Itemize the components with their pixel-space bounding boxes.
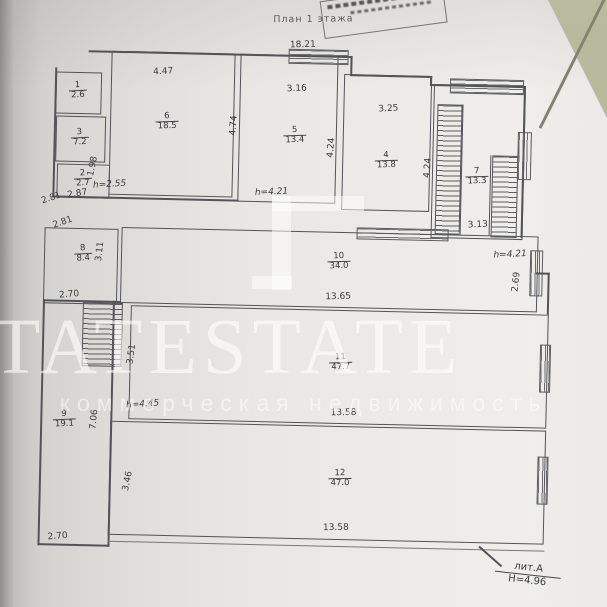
dim-label: 7.06 bbox=[88, 409, 100, 430]
room-4-outline bbox=[341, 74, 432, 212]
room-label-10: 1034.0 bbox=[327, 252, 351, 272]
dim-label: 2.70 bbox=[59, 289, 80, 301]
height-note: h=2.55 bbox=[93, 179, 127, 191]
room-area: 47.7 bbox=[329, 362, 352, 373]
room-label-5: 513.4 bbox=[283, 126, 307, 146]
height-note: h=4.21 bbox=[493, 249, 527, 261]
room-area: 13.3 bbox=[465, 176, 488, 187]
dim-label: 18.21 bbox=[290, 40, 316, 51]
dim-label: 4.24 bbox=[326, 137, 337, 158]
dim-label: 2.70 bbox=[47, 531, 68, 543]
room-number: 5 bbox=[292, 125, 298, 135]
floor-plan-photo: План 1 этажа bbox=[0, 0, 607, 607]
room-number: 2 bbox=[80, 168, 86, 178]
room-label-8: 88.4 bbox=[74, 244, 92, 264]
room-label-1: 12.6 bbox=[69, 81, 87, 101]
stair-flight-hatch bbox=[82, 302, 123, 367]
room-area: 18.5 bbox=[156, 121, 179, 132]
dim-label: 4.47 bbox=[153, 66, 173, 77]
room-number: 6 bbox=[164, 111, 170, 121]
room-number: 12 bbox=[334, 468, 345, 478]
corner-stamp bbox=[320, 0, 448, 39]
dim-label: 13.58 bbox=[331, 408, 357, 418]
watermark-logo-mark bbox=[252, 276, 292, 289]
window-hatch bbox=[288, 49, 348, 65]
room-number: 9 bbox=[61, 409, 67, 419]
plan-drawing: План 1 этажа bbox=[0, 0, 607, 607]
room-label-7: 713.3 bbox=[465, 167, 489, 187]
dim-label: 2.81 bbox=[40, 190, 62, 206]
room-number: 8 bbox=[80, 243, 86, 253]
window-hatch bbox=[517, 132, 532, 180]
room-area: 13.8 bbox=[375, 160, 398, 171]
dim-label: 4.24 bbox=[422, 158, 433, 179]
dim-label: 3.16 bbox=[287, 83, 307, 94]
room-area: 47.0 bbox=[329, 478, 352, 489]
dim-label: 13.58 bbox=[323, 523, 349, 533]
room-label-4: 413.8 bbox=[374, 151, 398, 171]
stair-flight-hatch bbox=[491, 155, 519, 238]
dim-label: 3.25 bbox=[378, 104, 398, 115]
height-note: h=4.45 bbox=[126, 398, 160, 410]
room-number: 10 bbox=[333, 251, 344, 261]
building-height: Н=4.96 bbox=[494, 571, 561, 590]
room-label-11: 1147.7 bbox=[329, 353, 353, 373]
room-number: 1 bbox=[75, 80, 81, 90]
room-area: 7.2 bbox=[71, 137, 89, 148]
room-8-outline bbox=[43, 227, 119, 305]
room-area: 8.4 bbox=[74, 253, 92, 264]
room-area: 19.1 bbox=[53, 419, 76, 430]
window-hatch bbox=[450, 78, 524, 95]
room-number: 4 bbox=[383, 150, 389, 160]
dim-label: 2.87 bbox=[67, 188, 88, 201]
room-label-9: 919.1 bbox=[52, 409, 76, 430]
room-label-12: 1247.0 bbox=[328, 469, 351, 489]
room-area: 13.4 bbox=[283, 135, 306, 146]
wall bbox=[37, 543, 109, 547]
wall bbox=[37, 299, 45, 545]
room-number: 11 bbox=[335, 352, 346, 362]
wall bbox=[547, 273, 550, 315]
room-label-6: 618.5 bbox=[155, 112, 179, 132]
dim-label: 13.65 bbox=[325, 292, 351, 303]
room-area: 34.0 bbox=[327, 261, 350, 272]
litera-note: лит.А Н=4.96 bbox=[494, 559, 562, 590]
dim-label: 3.13 bbox=[468, 220, 488, 231]
room-number: 3 bbox=[76, 127, 82, 137]
room-area: 2.6 bbox=[69, 90, 87, 101]
room-label-3: 37.2 bbox=[70, 128, 88, 148]
dim-label: 4.74 bbox=[228, 115, 239, 136]
room-number: 7 bbox=[474, 166, 480, 176]
